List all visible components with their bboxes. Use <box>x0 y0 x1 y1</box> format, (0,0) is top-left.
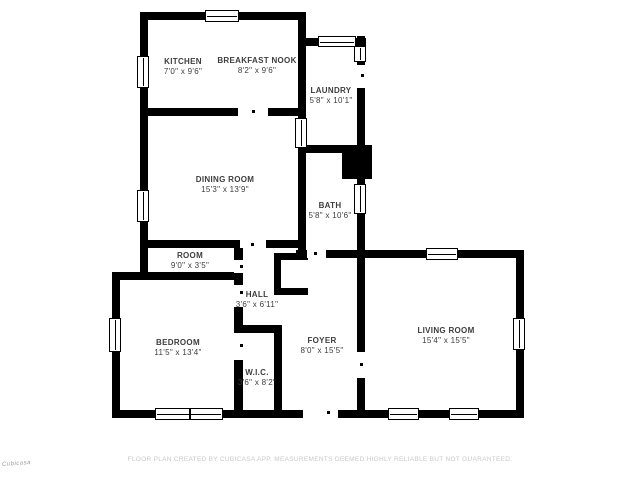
window-midline <box>428 254 456 255</box>
living-right-window-icon <box>513 318 525 350</box>
floor-plan-canvas: KITCHEN7'0" x 9'6"BREAKFAST NOOK8'2" x 9… <box>0 0 640 480</box>
door-swing-mark <box>361 74 364 77</box>
wall-foyer-living-divider <box>357 250 365 418</box>
front-entry-door <box>303 410 338 418</box>
window-midline <box>143 192 144 220</box>
top-window-icon <box>205 10 239 22</box>
room-dimensions: 15'4" x 15'5" <box>417 336 474 346</box>
room-label-dining-room: DINING ROOM15'3" x 13'9" <box>196 175 254 195</box>
dining-left-window-icon <box>137 190 149 222</box>
room-dimensions: 7'0" x 9'6" <box>164 67 202 77</box>
door-swing-mark <box>360 363 363 366</box>
room-dimensions: 11'5" x 13'4" <box>154 348 201 358</box>
wall-closet-bottom-wall <box>274 288 308 295</box>
room-label-foyer: FOYER8'0" x 15'5" <box>300 336 343 356</box>
window-midline <box>360 48 361 60</box>
window-midline <box>301 120 302 146</box>
living-top-window-icon <box>426 248 458 260</box>
footer-disclaimer-text: FLOOR PLAN CREATED BY CUBICASA APP. MEAS… <box>0 456 640 463</box>
room-name: BREAKFAST NOOK <box>217 56 296 66</box>
room-dimensions: 9'0" x 3'5" <box>171 261 209 271</box>
kitchen-left-window-icon <box>137 56 149 88</box>
window-midline <box>143 58 144 86</box>
window-pane-divider <box>189 409 191 419</box>
room-label-kitchen: KITCHEN7'0" x 9'6" <box>164 57 202 77</box>
door-swing-mark <box>240 265 243 268</box>
wall-kitchen-bottom-wall <box>140 108 306 116</box>
room-dimensions: 3'6" x 6'11" <box>236 300 278 310</box>
wall-room-bottom-wall <box>112 272 243 280</box>
door-swing-mark <box>251 243 254 246</box>
room-name: W.I.C. <box>238 368 276 378</box>
window-midline <box>115 320 116 350</box>
room-dimensions: 5'8" x 10'1" <box>309 96 352 106</box>
room-label-bedroom: BEDROOM11'5" x 13'4" <box>154 338 201 358</box>
room-name: BEDROOM <box>154 338 201 348</box>
room-dimensions: 15'3" x 13'9" <box>196 185 254 195</box>
laundry-top-window-icon <box>318 36 356 47</box>
room-name: ROOM <box>171 251 209 261</box>
living-bottom-window-1-icon <box>388 408 419 420</box>
room-label-laundry: LAUNDRY5'8" x 10'1" <box>309 86 352 106</box>
room-dimensions: 5'8" x 10'6" <box>308 211 351 221</box>
door-swing-mark <box>314 252 317 255</box>
room-label-wic: W.I.C.3'6" x 8'2" <box>238 368 276 388</box>
window-midline <box>519 320 520 348</box>
room-name: FOYER <box>300 336 343 346</box>
window-midline <box>207 16 237 17</box>
door-swing-mark <box>327 411 330 414</box>
door-swing-mark <box>252 110 255 113</box>
window-midline <box>360 186 361 212</box>
cubicasa-watermark-logo: Cubicasa <box>2 460 31 468</box>
room-name: BATH <box>308 201 351 211</box>
living-bottom-window-2-icon <box>449 408 479 420</box>
room-name: LAUNDRY <box>309 86 352 96</box>
door-swing-mark <box>240 344 243 347</box>
room-name: DINING ROOM <box>196 175 254 185</box>
room-dimensions: 3'6" x 8'2" <box>238 378 276 388</box>
room-label-breakfast-nook: BREAKFAST NOOK8'2" x 9'6" <box>217 56 296 76</box>
room-name: KITCHEN <box>164 57 202 67</box>
laundry-right-window-icon <box>354 46 366 62</box>
window-midline <box>390 414 417 415</box>
room-name: LIVING ROOM <box>417 326 474 336</box>
room-label-bath: BATH5'8" x 10'6" <box>308 201 351 221</box>
room-label-living-room: LIVING ROOM15'4" x 15'5" <box>417 326 474 346</box>
window-midline <box>451 414 477 415</box>
dining-bath-window-icon <box>295 118 307 148</box>
room-label-room: ROOM9'0" x 3'5" <box>171 251 209 271</box>
bath-right-window-icon <box>354 184 366 214</box>
room-label-hall: HALL3'6" x 6'11" <box>236 290 278 310</box>
room-name: HALL <box>236 290 278 300</box>
room-dimensions: 8'2" x 9'6" <box>217 66 296 76</box>
wall-dining-bottom-wall <box>140 240 298 248</box>
room-dimensions: 8'0" x 15'5" <box>300 346 343 356</box>
window-midline <box>320 42 354 43</box>
bedroom-bottom-window-icon <box>155 408 223 420</box>
bedroom-left-window-icon <box>109 318 121 352</box>
